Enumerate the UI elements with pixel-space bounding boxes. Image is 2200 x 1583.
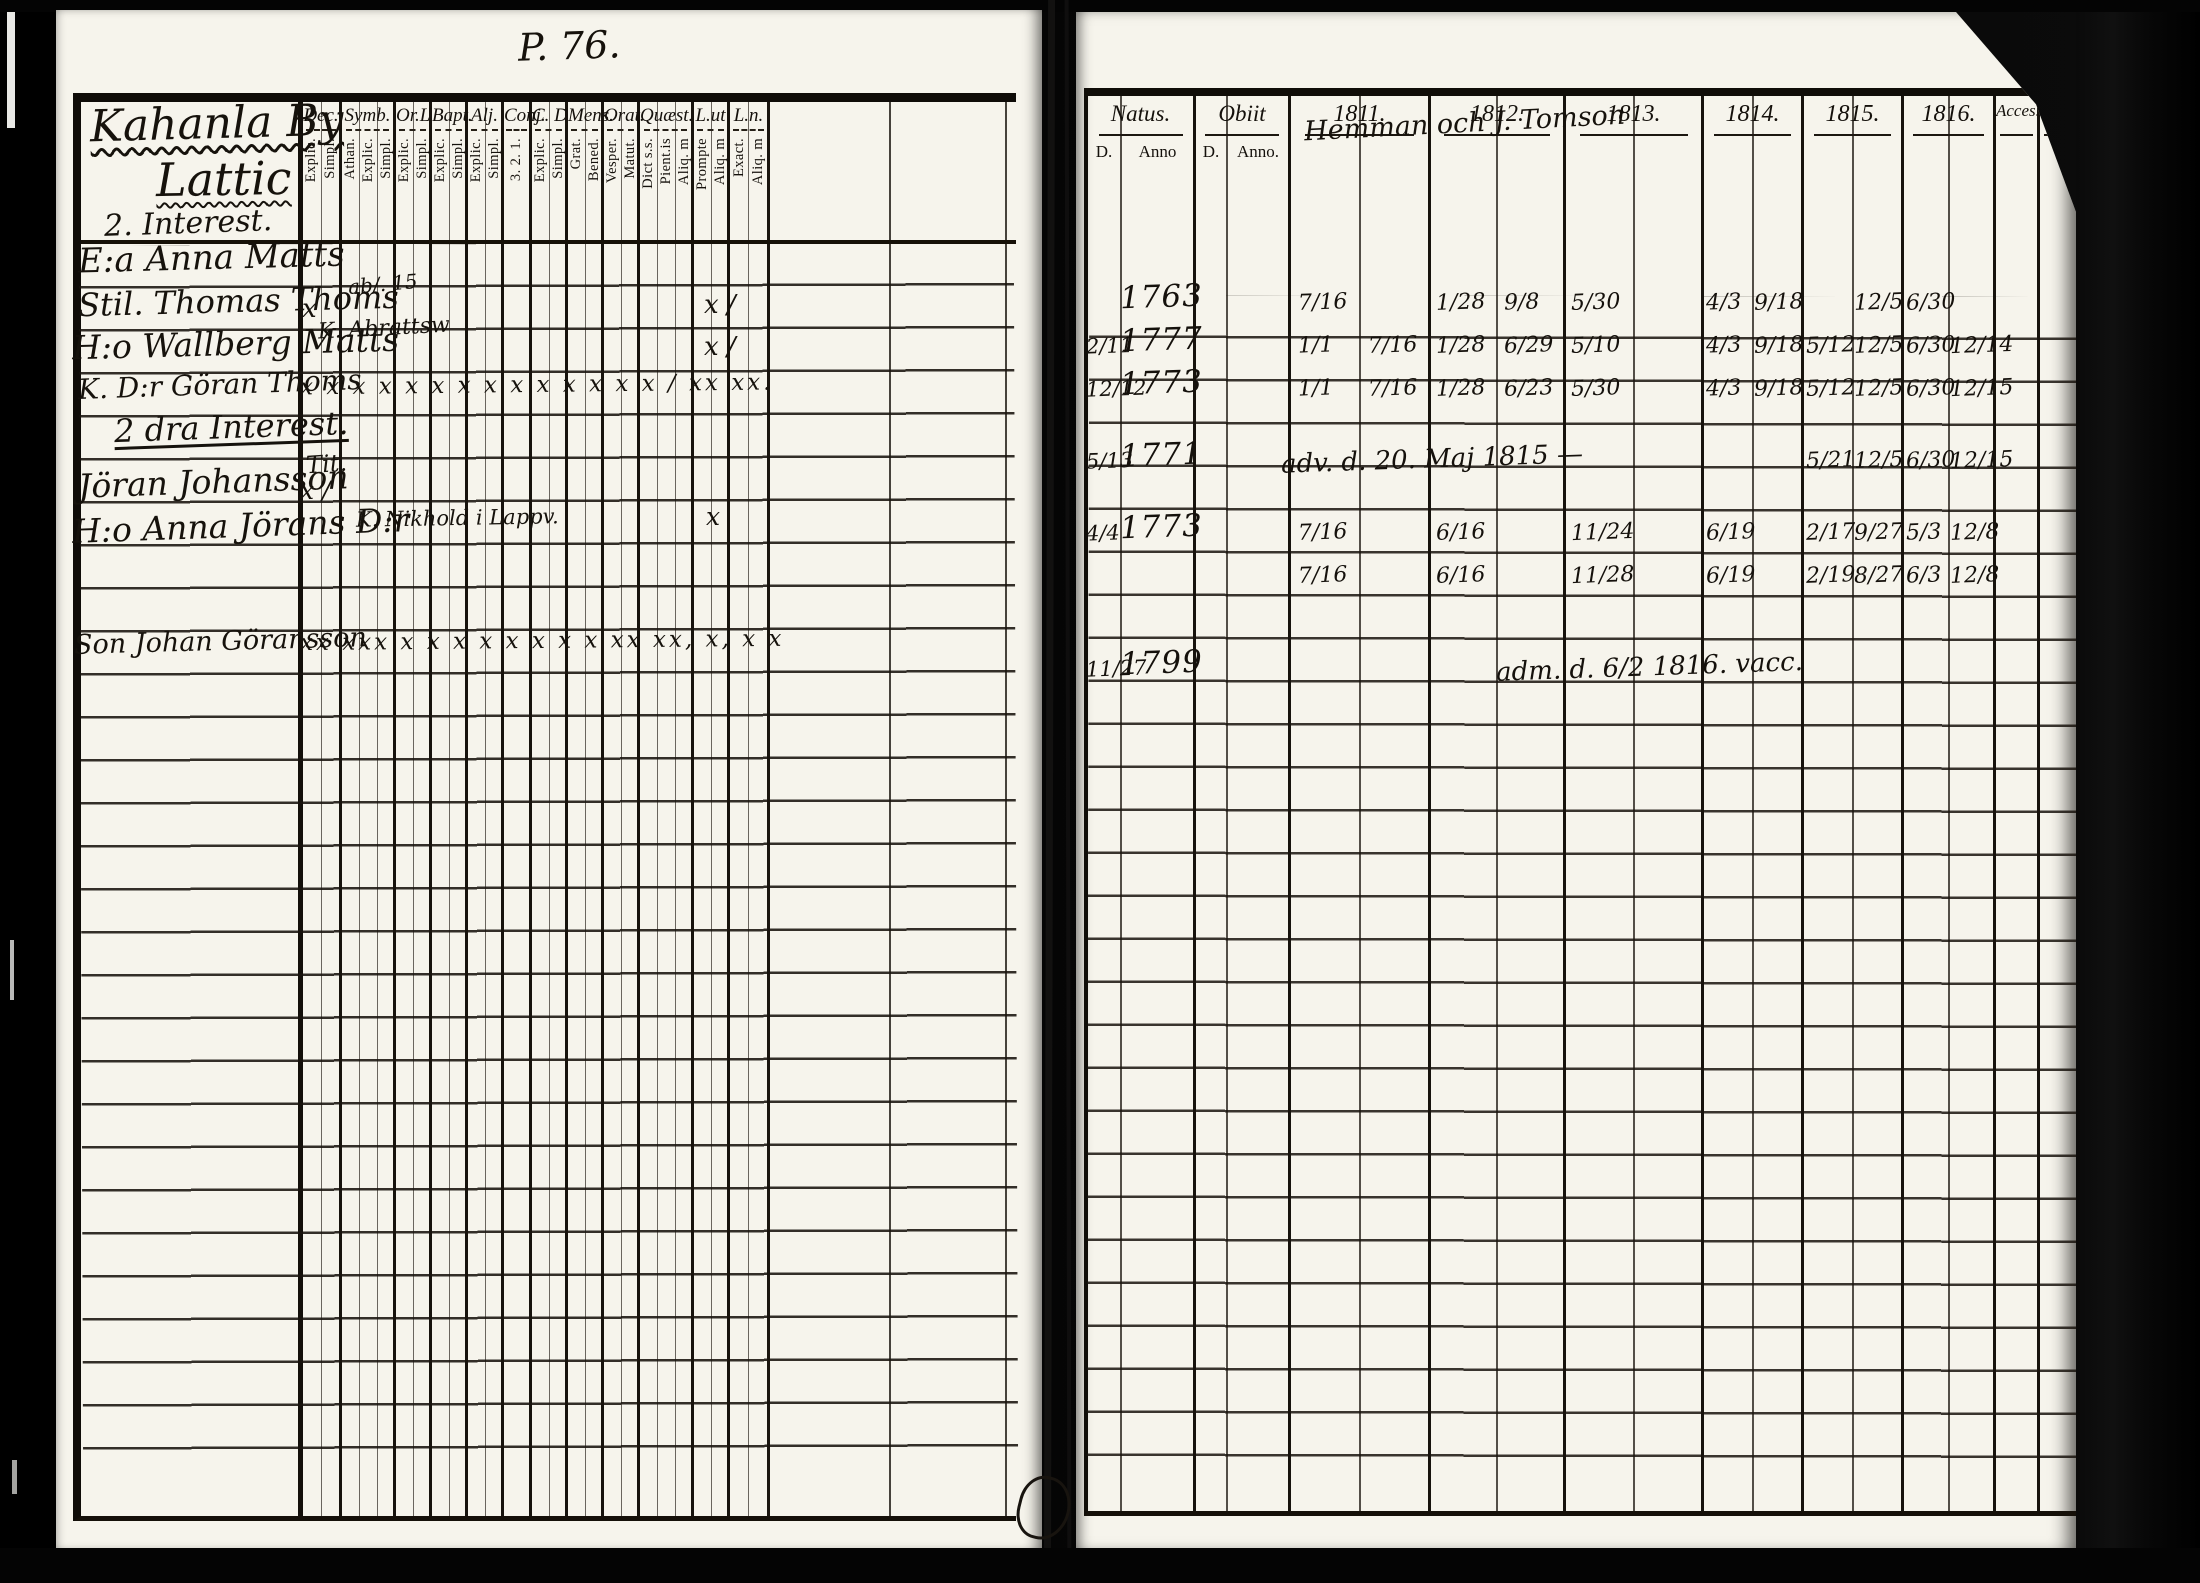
- subcolumn-label: 3. 2. 1.: [508, 138, 525, 181]
- person-prefix: H:o: [72, 327, 133, 368]
- reading-mark: x /: [704, 332, 736, 362]
- header-rule: [1714, 134, 1792, 136]
- subcolumn-label: Explic.: [360, 138, 377, 182]
- communion-date-1816: 12/14: [1950, 332, 2014, 359]
- birth-year: 1799: [1119, 644, 1200, 683]
- communion-date-1815: 12/5: [1854, 332, 1904, 359]
- header-rule: [1580, 134, 1688, 136]
- village-title: Kahanla By: [89, 95, 344, 153]
- birth-day: 4/4: [1086, 520, 1121, 545]
- column-label: Alj.: [468, 105, 501, 127]
- subcolumn-label: Prompte: [694, 138, 711, 190]
- header-dash: [535, 129, 563, 131]
- column-label: Orat.: [604, 105, 637, 127]
- communion-date-1813: 11/24: [1571, 519, 1635, 546]
- communion-date-1816: 12/15: [1950, 375, 2014, 402]
- communion-date-1816: 12/8: [1950, 562, 2000, 589]
- page-fold-line: [1065, 0, 1072, 1583]
- person-prefix: Stil.: [78, 284, 144, 324]
- birth-day: 11/27: [1086, 656, 1121, 681]
- communion-date-1813: 5/30: [1571, 375, 1621, 402]
- header-dash: [471, 129, 499, 131]
- header-dash: [697, 129, 725, 131]
- column-label: Obiit: [1196, 101, 1288, 127]
- communion-date-1811: 1/1: [1298, 375, 1334, 401]
- subcolumn-label: Aliq. m: [750, 138, 767, 185]
- left-page: P. 76. Dec. Explic. Simpl. Symb. Athan. …: [56, 10, 1042, 1550]
- communion-date-1812: 6/16: [1436, 562, 1486, 589]
- attendance-mark: x: [302, 294, 317, 324]
- header-rule: [1099, 134, 1183, 136]
- register-row: 2/11 1777 1/1 7/16 1/28 6/29 5/10 4/3 9/…: [1076, 317, 2076, 360]
- communion-date-1815: 12/5: [1854, 289, 1904, 316]
- header-rule: [1814, 134, 1892, 136]
- birth-day: 2/11: [1086, 333, 1121, 358]
- column-label: Acces.: [1996, 101, 2037, 121]
- person-prefix: Son: [74, 628, 127, 660]
- subcolumn-label: Explic.: [432, 138, 449, 182]
- communion-date-1815: 9/27: [1854, 519, 1904, 546]
- header-dash: [571, 129, 599, 131]
- communion-date-1814: 9/18: [1754, 289, 1804, 316]
- communion-date-1811: 1/1: [1298, 332, 1334, 358]
- reading-mark: x /: [704, 290, 736, 320]
- year-label: 1816.: [1904, 101, 1993, 128]
- communion-date-1814: 4/3: [1706, 332, 1742, 358]
- subcolumn-label: Vesper.: [604, 138, 621, 183]
- communion-date-1816: 5/3: [1906, 519, 1942, 545]
- communion-date-1815: 12/5: [1854, 447, 1904, 474]
- birth-year: 1771: [1119, 436, 1200, 475]
- subcolumn-label: Anno.: [1228, 142, 1288, 162]
- admission-note: adm. d. 6/2 1816. vacc.: [1496, 640, 1997, 687]
- column-label: Mens.: [568, 105, 601, 127]
- communion-date-1815: 2/19: [1806, 562, 1856, 589]
- communion-date-1816: 12/8: [1950, 519, 2000, 546]
- year-label: 1815.: [1804, 101, 1901, 128]
- marginal-note: Tit.: [305, 449, 348, 480]
- communion-date-1812: 9/8: [1504, 289, 1540, 315]
- subcolumn-label: Pient.is: [658, 138, 675, 184]
- communion-date-1816: 6/30: [1906, 375, 1956, 402]
- communion-date-1814: 6/19: [1706, 519, 1756, 546]
- column-label: Bapt.: [432, 105, 465, 127]
- communion-date-1813: 5/10: [1571, 332, 1621, 359]
- header-rule: [2000, 134, 2033, 136]
- communion-date-1812: 1/28: [1436, 332, 1486, 359]
- communion-date-1815: 5/12: [1806, 375, 1856, 402]
- header-dash: [399, 129, 427, 131]
- communion-date-1816: 6/30: [1906, 289, 1956, 316]
- register-row: 7/16 6/16 11/28 6/19 2/19 8/27 6/3 12/8: [1076, 547, 2076, 590]
- subcolumn-label: Grat.: [568, 138, 585, 169]
- right-page: Natus. D. Anno Obiit D. Anno. 1811.: [1076, 12, 2076, 1550]
- subcolumn-label: Exact.: [731, 138, 748, 177]
- header-rule: [2044, 134, 2075, 136]
- subcolumn-label: Anno: [1122, 142, 1193, 162]
- attendance-marks-row: x x x x x x x x x x x x x x / xx xx.: [300, 370, 770, 401]
- communion-date-1815: 5/21: [1806, 447, 1856, 474]
- communion-date-1816: 6/3: [1906, 562, 1942, 588]
- header-dash: [346, 129, 389, 131]
- column-label: L.n.: [730, 105, 767, 127]
- marginal-note: K. Nikhold i Lappv.: [356, 504, 559, 532]
- header-rule: [1205, 134, 1279, 136]
- communion-date-1813: 11/28: [1571, 562, 1635, 589]
- communion-date-1812: 1/28: [1436, 289, 1486, 316]
- communion-date-1814: 9/18: [1754, 375, 1804, 402]
- communion-date-1811: 7/16: [1368, 332, 1418, 359]
- communion-date-1816: 6/30: [1906, 332, 1956, 359]
- column-label: Or.L: [396, 105, 429, 127]
- attendance-mark: x /: [300, 476, 330, 505]
- communion-date-1814: 4/3: [1706, 289, 1742, 315]
- register-row: 11/27 1799 adm. d. 6/2 1816. vacc.: [1076, 640, 2076, 683]
- communion-date-1811: 7/16: [1298, 519, 1348, 546]
- person-name: Anna Matts: [145, 235, 345, 280]
- birth-year: 1777: [1119, 321, 1200, 360]
- film-scratch: [7, 0, 15, 128]
- film-scratch: [10, 940, 14, 1000]
- film-dark-band: [2076, 0, 2200, 1583]
- communion-date-1815: 8/27: [1854, 562, 1904, 589]
- subcolumn-label: D.: [1196, 142, 1226, 162]
- birth-year: 1763: [1119, 278, 1200, 317]
- column-label: Abiit.: [2040, 101, 2079, 121]
- communion-date-1811: 7/16: [1298, 289, 1348, 316]
- communion-date-1814: 6/19: [1706, 562, 1756, 589]
- communion-date-1813: 5/30: [1571, 289, 1621, 316]
- communion-date-1815: 5/12: [1806, 332, 1856, 359]
- communion-date-1812: 6/29: [1504, 332, 1554, 359]
- register-row: 12/12 1773 1/1 7/16 1/28 6/23 5/30 4/3 9…: [1076, 360, 2076, 403]
- death-or-move-note: adv. d. 20. Maj 1815 —: [1281, 432, 1782, 479]
- communion-date-1816: 6/30: [1906, 447, 1956, 474]
- reading-mark: x: [706, 502, 720, 531]
- person-row-name: E:a Anna Matts: [78, 235, 346, 282]
- communion-date-1812: 6/16: [1436, 519, 1486, 546]
- year-label: 1814.: [1704, 101, 1801, 128]
- birth-year: 1773: [1119, 364, 1200, 403]
- birth-day: 12/12: [1086, 376, 1121, 401]
- header-dash: [607, 129, 635, 131]
- communion-date-1811: 7/16: [1298, 562, 1348, 589]
- communion-date-1815: 12/5: [1854, 375, 1904, 402]
- column-label: Conj.: [504, 105, 529, 127]
- person-prefix: E:a: [78, 240, 136, 281]
- farm-title: Lattic: [156, 151, 292, 207]
- subcolumn-label: Explic.: [396, 138, 413, 182]
- communion-date-1814: 9/18: [1754, 332, 1804, 359]
- scanned-register-page: { "scan": { "page_number": "P. 76.", "le…: [0, 0, 2200, 1583]
- subcolumn-label: Explic.: [532, 138, 549, 182]
- header-dash: [733, 129, 764, 131]
- column-label: Quæst.: [640, 105, 691, 127]
- column-label: L.ut: [694, 105, 727, 127]
- page-fold-line: [1044, 0, 1055, 1583]
- communion-date-1815: 2/17: [1806, 519, 1856, 546]
- communion-date-1816: 12/15: [1950, 447, 2014, 474]
- register-row: 4/4 1773 7/16 6/16 11/24 6/19 2/17 9/27 …: [1076, 504, 2076, 547]
- person-prefix: H:o: [71, 510, 132, 551]
- column-label: C. D: [532, 105, 565, 127]
- person-prefix: K. D:r: [78, 370, 163, 406]
- birth-day: 5/13: [1086, 448, 1121, 473]
- subcolumn-label: Dict s.s.: [640, 138, 657, 189]
- column-label: Natus.: [1088, 101, 1193, 127]
- communion-date-1812: 6/23: [1504, 375, 1554, 402]
- header-dash: [644, 129, 687, 131]
- column-label: Symb.: [342, 105, 393, 127]
- communion-date-1812: 1/28: [1436, 375, 1486, 402]
- film-bottom-edge: [0, 1548, 2200, 1583]
- header-dash: [506, 129, 527, 131]
- header-dash: [435, 129, 463, 131]
- header-rule: [1913, 134, 1984, 136]
- register-row: 5/13 1771 adv. d. 20. Maj 1815 — 5/21 12…: [1076, 432, 2076, 475]
- communion-date-1811: 7/16: [1368, 375, 1418, 402]
- communion-date-1814: 4/3: [1706, 375, 1742, 401]
- page-number: P. 76.: [517, 22, 621, 70]
- birth-year: 1773: [1119, 508, 1200, 547]
- subcolumn-label: Explic.: [468, 138, 485, 182]
- film-scratch: [12, 1460, 17, 1494]
- register-row: 1763 7/16 1/28 9/8 5/30 4/3 9/18 12/5 6/…: [1076, 274, 2076, 317]
- attendance-marks-row: xx xxx x x x x x x x x xx xx, x, x x: [300, 626, 780, 656]
- subcolumn-label: D.: [1088, 142, 1120, 162]
